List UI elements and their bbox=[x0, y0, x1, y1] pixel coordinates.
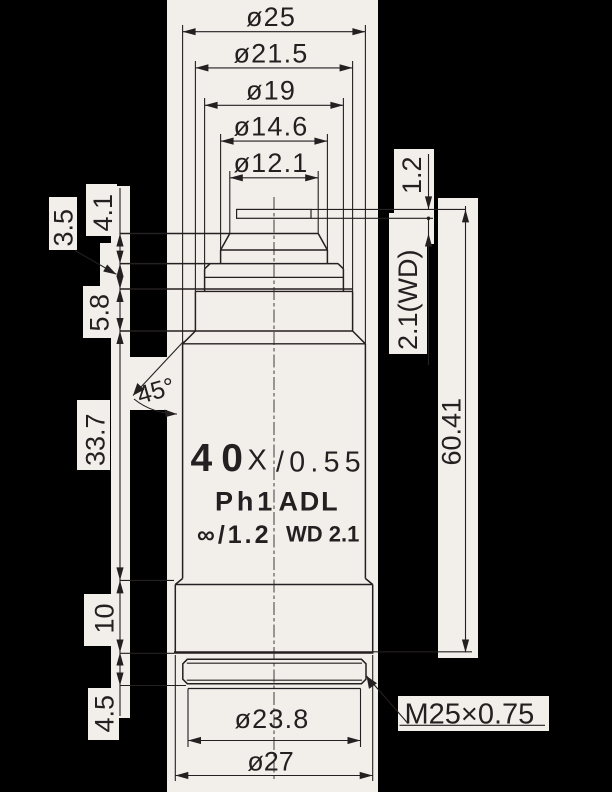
svg-text:3.5: 3.5 bbox=[49, 209, 79, 247]
svg-text:ø27: ø27 bbox=[247, 747, 294, 777]
svg-text:33.7: 33.7 bbox=[81, 413, 111, 466]
svg-text:ø19: ø19 bbox=[246, 76, 296, 106]
svg-text:4.1: 4.1 bbox=[88, 194, 118, 232]
svg-text:4.5: 4.5 bbox=[90, 695, 120, 733]
svg-text:ADL: ADL bbox=[279, 487, 340, 517]
svg-text:ø25: ø25 bbox=[246, 2, 296, 32]
svg-text:ø21.5: ø21.5 bbox=[233, 39, 308, 69]
svg-text:40: 40 bbox=[191, 437, 252, 480]
svg-text:WD 2.1: WD 2.1 bbox=[286, 522, 359, 547]
svg-text:Ph1: Ph1 bbox=[215, 487, 276, 517]
svg-text:/0.55: /0.55 bbox=[276, 447, 366, 479]
svg-text:2.1(WD): 2.1(WD) bbox=[393, 250, 423, 351]
svg-text:ø12.1: ø12.1 bbox=[233, 148, 308, 178]
svg-text:ø14.6: ø14.6 bbox=[233, 112, 308, 142]
svg-text:5.8: 5.8 bbox=[85, 294, 115, 332]
svg-text:10: 10 bbox=[90, 603, 120, 633]
svg-text:60.41: 60.41 bbox=[437, 398, 467, 466]
svg-text:∞/1.2: ∞/1.2 bbox=[197, 521, 272, 549]
svg-text:M25×0.75: M25×0.75 bbox=[405, 699, 535, 731]
svg-text:X: X bbox=[248, 445, 267, 477]
svg-text:1.2: 1.2 bbox=[397, 156, 427, 194]
svg-text:ø23.8: ø23.8 bbox=[234, 704, 309, 734]
